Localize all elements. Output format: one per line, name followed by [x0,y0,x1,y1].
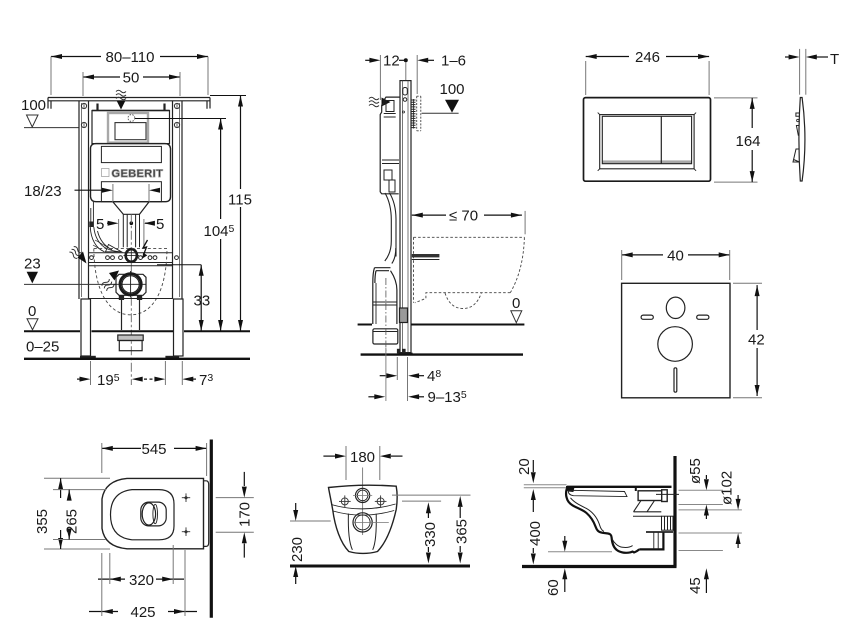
svg-text:180: 180 [350,449,375,466]
svg-text:≤ 70: ≤ 70 [449,208,478,225]
svg-text:400: 400 [527,521,544,546]
svg-text:265: 265 [64,509,81,534]
svg-text:ø102: ø102 [719,471,736,505]
svg-text:0: 0 [28,303,36,320]
svg-text:355: 355 [34,509,51,534]
svg-text:5: 5 [156,216,164,233]
svg-text:0: 0 [512,295,520,312]
svg-text:545: 545 [141,441,166,458]
svg-text:GEBERIT: GEBERIT [112,168,164,180]
svg-text:5: 5 [96,216,104,233]
svg-text:20: 20 [516,458,533,475]
svg-text:T: T [830,51,839,68]
svg-text:115: 115 [228,192,252,209]
svg-text:23: 23 [24,256,41,273]
svg-text:50: 50 [123,70,140,87]
svg-text:230: 230 [289,537,306,562]
svg-text:ø55: ø55 [687,458,704,484]
svg-text:100: 100 [21,97,46,114]
svg-text:246: 246 [635,49,660,66]
svg-text:18/23: 18/23 [24,183,62,200]
svg-text:100: 100 [440,81,465,98]
svg-text:45: 45 [687,577,704,594]
svg-text:33: 33 [194,293,211,310]
svg-text:164: 164 [736,133,761,150]
svg-text:425: 425 [130,604,155,621]
svg-text:80–110: 80–110 [106,49,155,66]
svg-text:365: 365 [454,519,471,544]
svg-text:320: 320 [129,572,154,589]
svg-text:0–25: 0–25 [26,339,59,356]
svg-text:1–6: 1–6 [441,53,466,70]
svg-text:330: 330 [422,522,439,547]
svg-text:12: 12 [383,53,400,70]
svg-text:170: 170 [237,502,254,527]
svg-text:42: 42 [748,332,765,349]
svg-text:40: 40 [667,248,684,265]
svg-text:60: 60 [545,579,562,596]
